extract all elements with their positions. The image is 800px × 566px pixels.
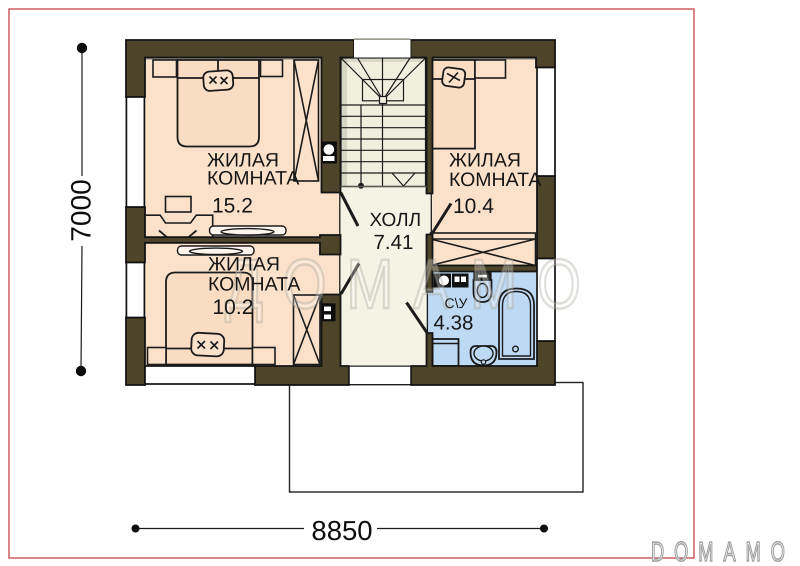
svg-text:10.2: 10.2 (213, 296, 254, 319)
svg-text:DOMAMO: DOMAMO (651, 536, 795, 566)
svg-text:10.4: 10.4 (453, 195, 494, 218)
svg-text:ХОЛЛ: ХОЛЛ (370, 210, 422, 231)
svg-text:15.2: 15.2 (212, 195, 253, 218)
svg-text:8850: 8850 (311, 515, 372, 546)
svg-text:7.41: 7.41 (374, 231, 414, 254)
svg-text:С\У: С\У (445, 295, 468, 311)
svg-text:ЖИЛАЯ: ЖИЛАЯ (208, 254, 280, 276)
svg-text:КОМНАТА: КОМНАТА (207, 168, 299, 190)
svg-text:КОМНАТА: КОМНАТА (449, 169, 541, 191)
svg-text:4.38: 4.38 (434, 312, 474, 335)
svg-text:КОМНАТА: КОМНАТА (208, 274, 300, 296)
svg-text:7000: 7000 (66, 179, 97, 241)
